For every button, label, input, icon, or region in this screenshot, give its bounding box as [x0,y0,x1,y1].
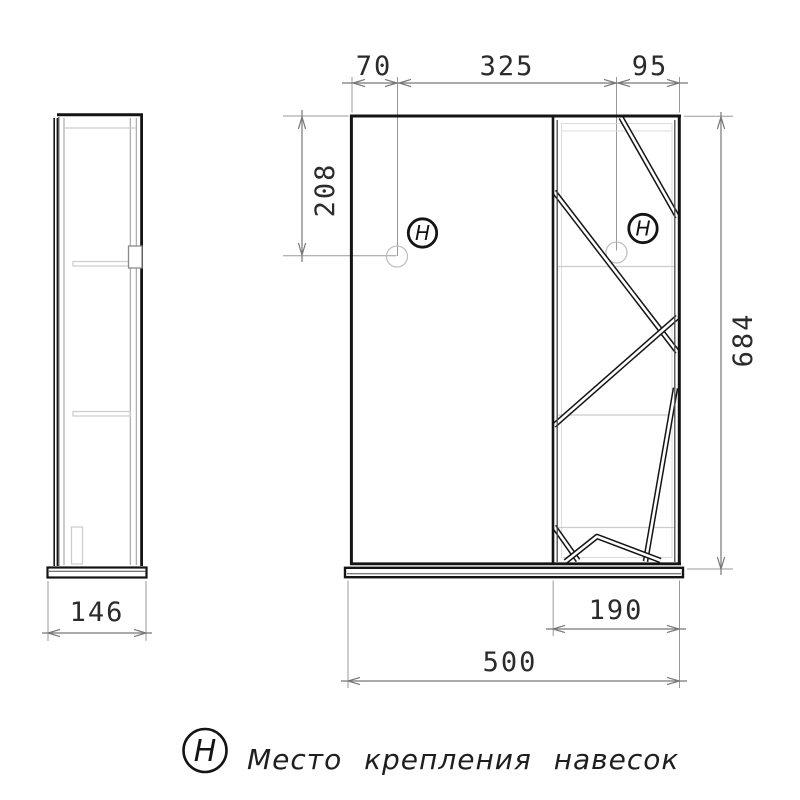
drawing-canvas: 146 [0,0,800,800]
pattern-strip [554,317,678,426]
hanger-bracket [129,246,143,268]
legend-symbol: H [194,734,217,769]
marker-letter: H [415,221,430,245]
mounting-marker-icon: H [408,219,436,247]
cabinet-front-outline [350,115,681,565]
legend-marker-icon: H [184,729,227,772]
pattern-strip [621,118,678,218]
pattern-strip [554,192,678,353]
marker-letter: H [635,217,650,241]
bottom-detail [72,527,83,564]
dim-door-width: 190 [546,581,686,689]
pattern-strip [646,388,676,562]
legend: H Место крепления навесок [184,729,680,776]
dim-spacing-label: 325 [480,51,535,82]
mounting-marker-icon: H [629,214,657,242]
shelf-line [73,262,130,267]
front-view: H H 70 325 95 208 [283,51,759,688]
shelf-line [73,412,130,417]
dim-depth-label: 146 [70,597,125,628]
cabinet-body-outline [57,114,143,566]
dim-offset-left-label: 70 [356,51,393,82]
dim-drop-label: 208 [310,163,341,218]
dim-offset-right-label: 95 [632,51,669,82]
side-view: 146 [42,114,152,641]
base-shelf [345,568,683,577]
mirror-edge-line [53,118,58,566]
door-pattern [554,118,678,562]
dim-height-label: 684 [728,313,759,368]
dim-height: 684 [717,112,759,575]
base-plinth [48,568,147,578]
dim-depth: 146 [42,581,152,641]
dim-total-width-label: 500 [483,647,538,678]
dim-drop: 208 [298,110,341,262]
dim-top-chain: 70 325 95 [342,51,688,87]
legend-label: Место крепления навесок [247,743,679,776]
dim-door-width-label: 190 [589,595,644,626]
